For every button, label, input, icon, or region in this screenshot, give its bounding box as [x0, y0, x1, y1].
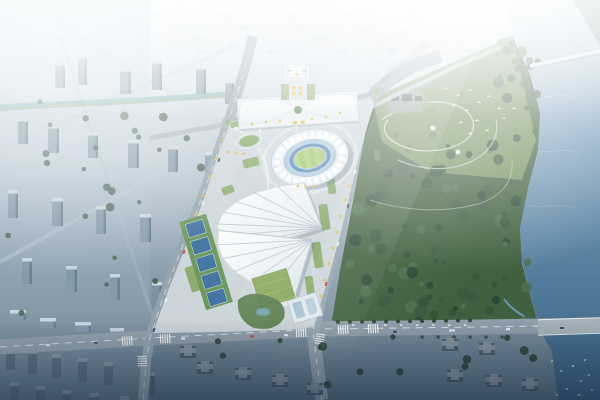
- tree-cluster: [453, 306, 458, 311]
- tree-cluster: [492, 296, 500, 304]
- tree-cluster: [492, 282, 498, 288]
- tree-cluster: [457, 312, 462, 317]
- tree-cluster: [460, 304, 465, 309]
- render-canvas: [0, 0, 600, 400]
- aerial-render: [0, 0, 600, 400]
- tree-cluster: [457, 288, 469, 300]
- tree-cluster: [521, 282, 531, 292]
- atmosphere: [0, 0, 600, 400]
- tree-cluster: [501, 274, 508, 281]
- tree-cluster: [485, 306, 494, 315]
- bottom-vignette: [0, 320, 600, 400]
